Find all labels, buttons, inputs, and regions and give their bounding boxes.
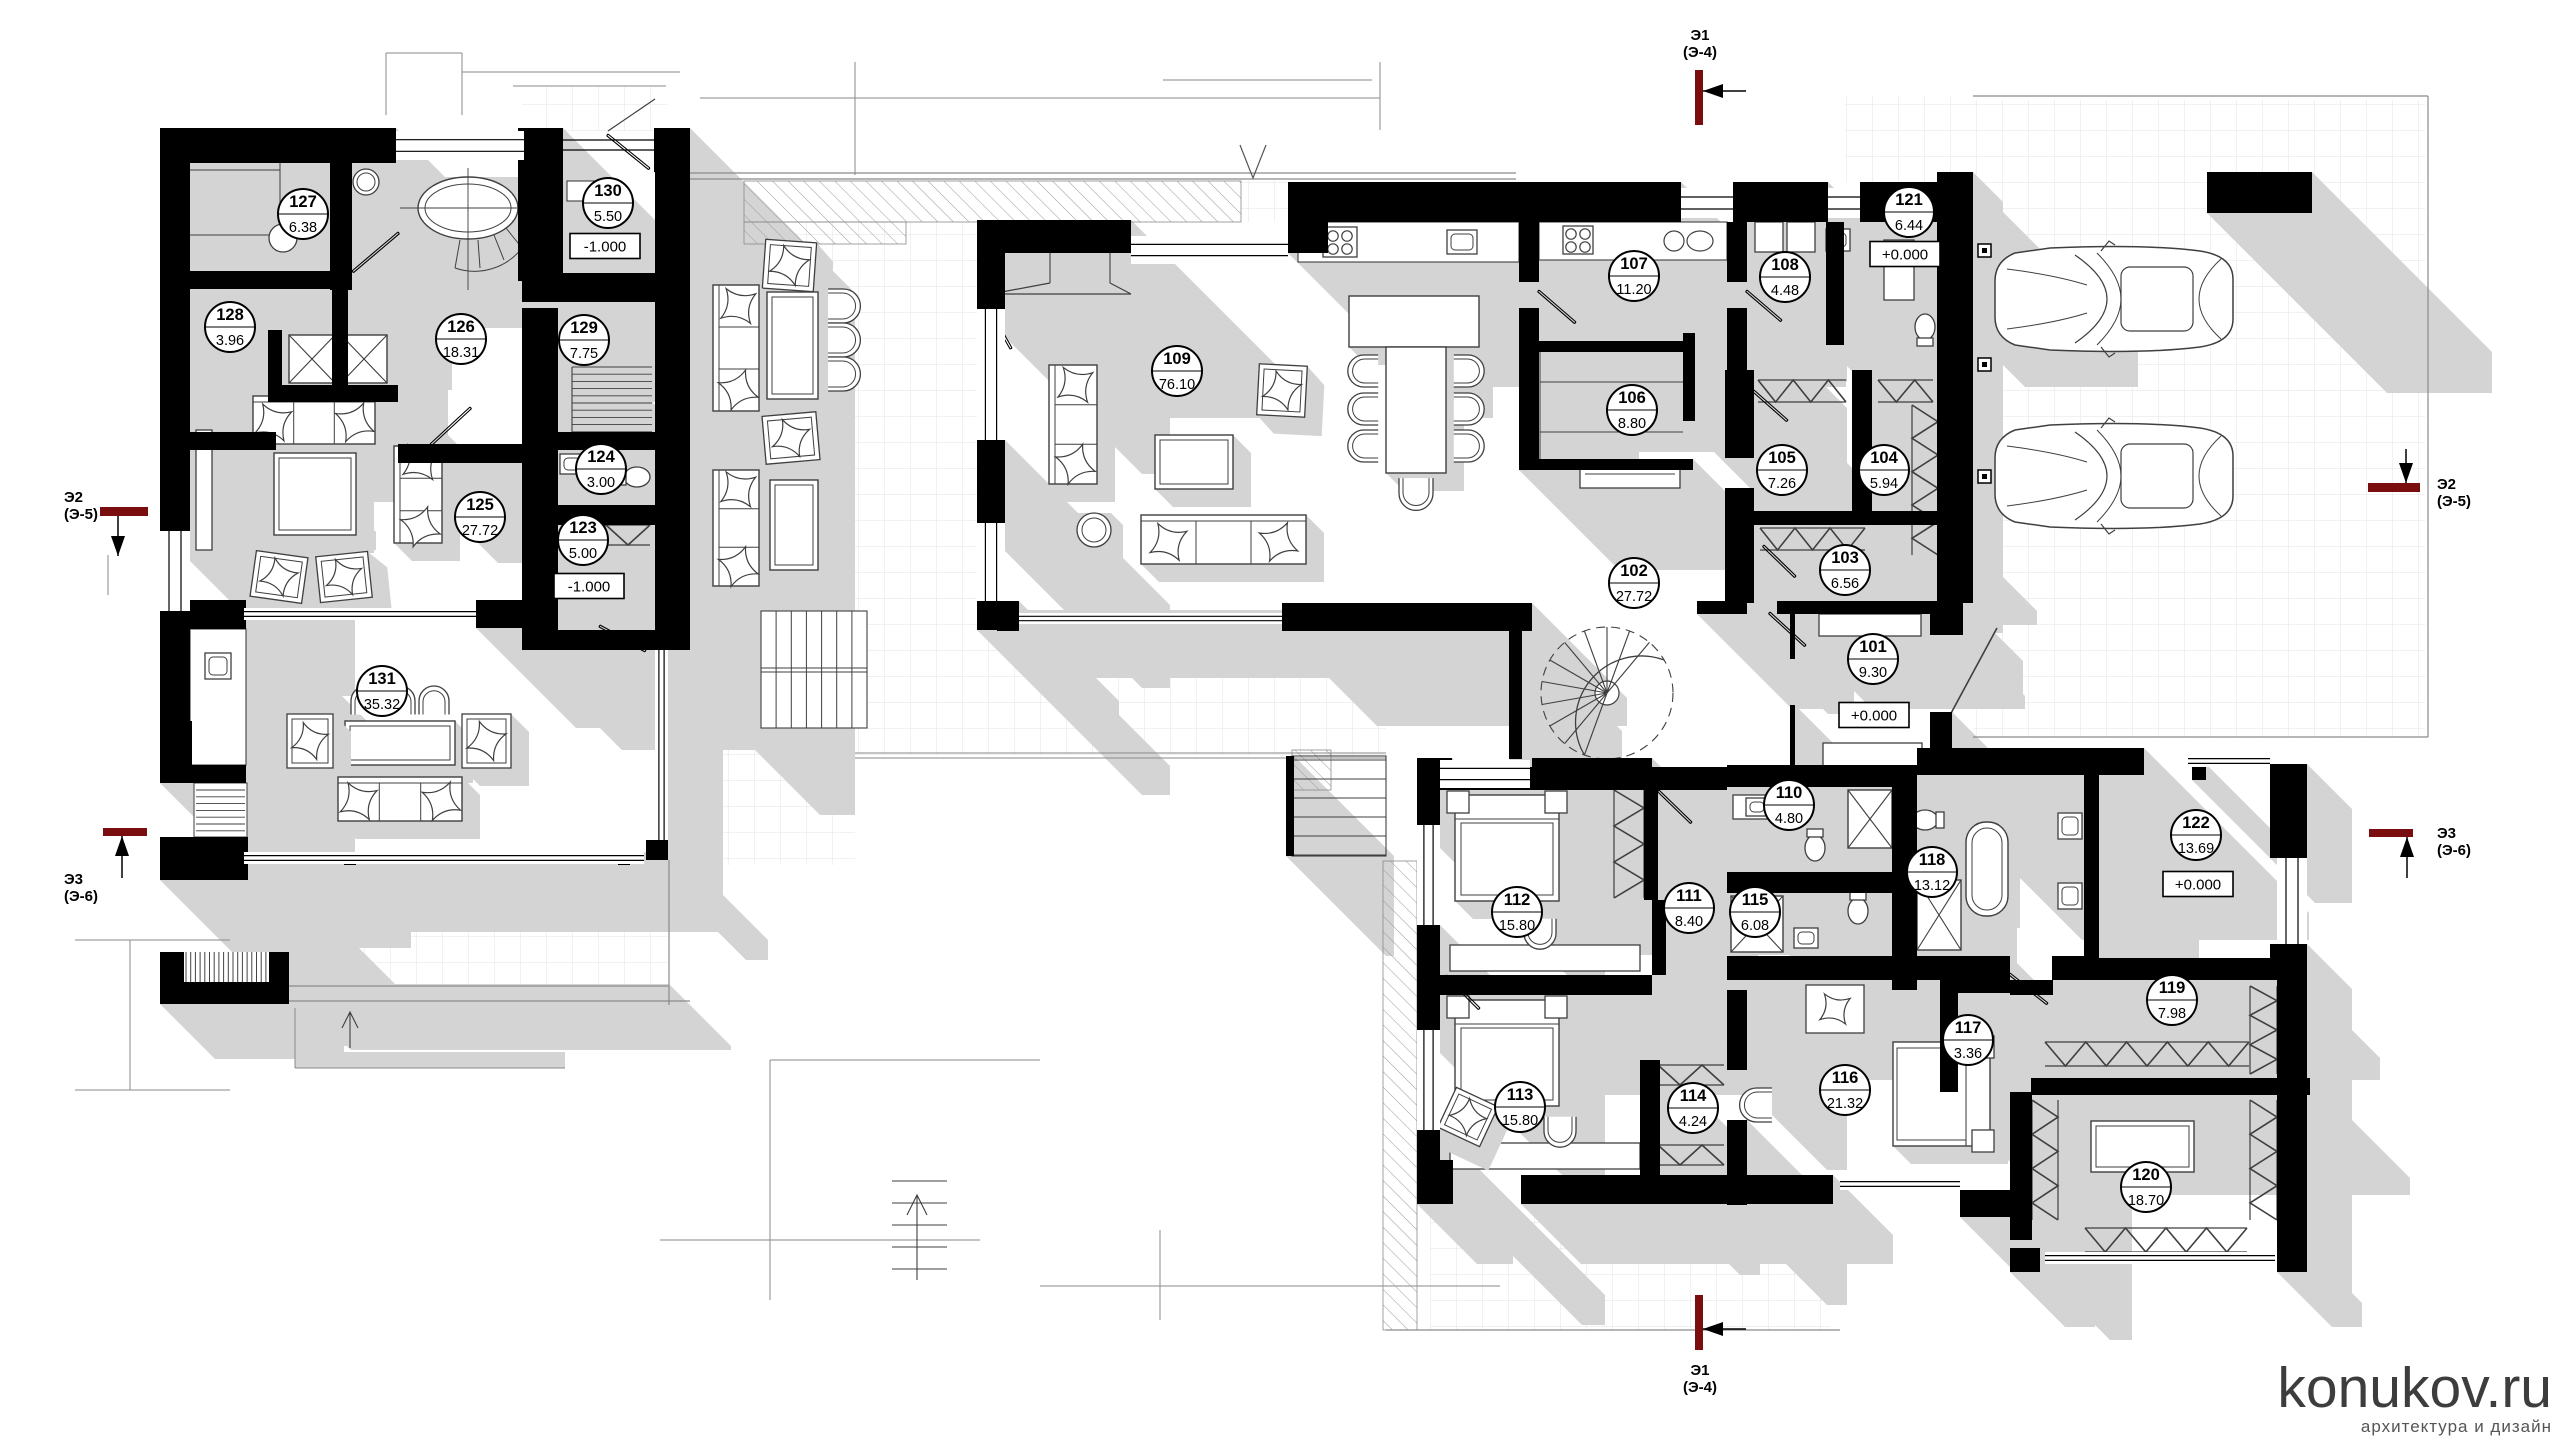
svg-text:8.40: 8.40 [1675,914,1703,930]
svg-text:120: 120 [2132,1166,2160,1184]
svg-text:18.70: 18.70 [2128,1193,2164,1209]
svg-text:(Э-4): (Э-4) [1683,1379,1717,1396]
svg-text:111: 111 [1676,887,1702,905]
svg-text:129: 129 [570,319,598,337]
svg-text:8.80: 8.80 [1618,416,1646,432]
svg-text:118: 118 [1919,851,1946,869]
svg-text:+0.000: +0.000 [2175,877,2221,894]
svg-text:Э2: Э2 [2437,476,2456,493]
svg-text:102: 102 [1620,562,1648,580]
svg-text:27.72: 27.72 [462,523,498,539]
svg-text:4.80: 4.80 [1775,811,1803,827]
svg-text:3.00: 3.00 [587,475,615,491]
svg-text:-1.000: -1.000 [568,579,611,596]
svg-text:5.94: 5.94 [1870,476,1898,492]
svg-text:Э3: Э3 [2437,825,2456,842]
svg-text:108: 108 [1771,256,1799,274]
svg-text:15.80: 15.80 [1499,918,1535,934]
svg-text:112: 112 [1504,891,1531,909]
svg-text:123: 123 [569,519,597,537]
svg-text:4.48: 4.48 [1771,283,1799,299]
svg-text:6.08: 6.08 [1741,918,1769,934]
svg-text:(Э-4): (Э-4) [1683,44,1717,61]
svg-text:106: 106 [1618,389,1646,407]
svg-text:5.00: 5.00 [569,546,597,562]
svg-text:+0.000: +0.000 [1882,247,1928,264]
svg-text:130: 130 [594,182,622,200]
svg-text:76.10: 76.10 [1159,377,1195,393]
svg-text:9.30: 9.30 [1859,665,1887,681]
svg-text:117: 117 [1955,1019,1982,1037]
svg-text:Э3: Э3 [64,871,83,888]
svg-text:-1.000: -1.000 [584,239,627,256]
svg-text:110: 110 [1776,784,1803,802]
svg-text:(Э-6): (Э-6) [2437,842,2471,859]
svg-text:119: 119 [2159,979,2186,997]
svg-text:131: 131 [368,670,396,688]
svg-text:103: 103 [1831,549,1859,567]
svg-text:6.38: 6.38 [289,220,317,236]
svg-text:(Э-5): (Э-5) [2437,493,2471,510]
svg-text:4.24: 4.24 [1679,1114,1707,1130]
svg-text:6.56: 6.56 [1831,576,1859,592]
svg-text:13.12: 13.12 [1914,878,1950,894]
svg-text:35.32: 35.32 [364,697,400,713]
svg-text:7.98: 7.98 [2158,1006,2186,1022]
svg-text:101: 101 [1859,638,1887,656]
svg-text:Э2: Э2 [64,489,83,506]
svg-text:122: 122 [2182,814,2210,832]
svg-text:27.72: 27.72 [1616,589,1652,605]
svg-text:konukov.ru: konukov.ru [2277,1356,2552,1420]
svg-text:Э1: Э1 [1690,27,1709,44]
svg-text:109: 109 [1163,350,1191,368]
svg-text:114: 114 [1680,1087,1707,1105]
svg-text:107: 107 [1620,255,1648,273]
svg-text:125: 125 [466,496,494,514]
svg-text:7.26: 7.26 [1768,476,1796,492]
svg-text:115: 115 [1742,891,1769,909]
svg-text:(Э-5): (Э-5) [64,506,98,523]
svg-text:21.32: 21.32 [1827,1096,1863,1112]
svg-text:11.20: 11.20 [1616,282,1651,298]
svg-text:3.36: 3.36 [1954,1046,1982,1062]
svg-text:(Э-6): (Э-6) [64,888,98,905]
svg-text:6.44: 6.44 [1895,218,1923,234]
svg-text:13.69: 13.69 [2178,841,2214,857]
svg-text:18.31: 18.31 [443,345,479,361]
svg-text:121: 121 [1895,191,1923,209]
svg-text:5.50: 5.50 [594,209,622,225]
svg-text:архитектура и дизайн: архитектура и дизайн [2361,1417,2552,1436]
svg-text:+0.000: +0.000 [1851,708,1897,725]
svg-text:113: 113 [1507,1086,1534,1104]
svg-text:7.75: 7.75 [570,346,598,362]
svg-text:126: 126 [447,318,475,336]
svg-text:104: 104 [1870,449,1898,467]
svg-text:127: 127 [289,193,317,211]
svg-text:116: 116 [1832,1069,1859,1087]
svg-text:Э1: Э1 [1690,1362,1709,1379]
svg-text:124: 124 [587,448,615,466]
svg-text:128: 128 [216,306,244,324]
svg-text:15.80: 15.80 [1502,1113,1538,1129]
svg-text:3.96: 3.96 [216,333,244,349]
svg-text:105: 105 [1768,449,1796,467]
